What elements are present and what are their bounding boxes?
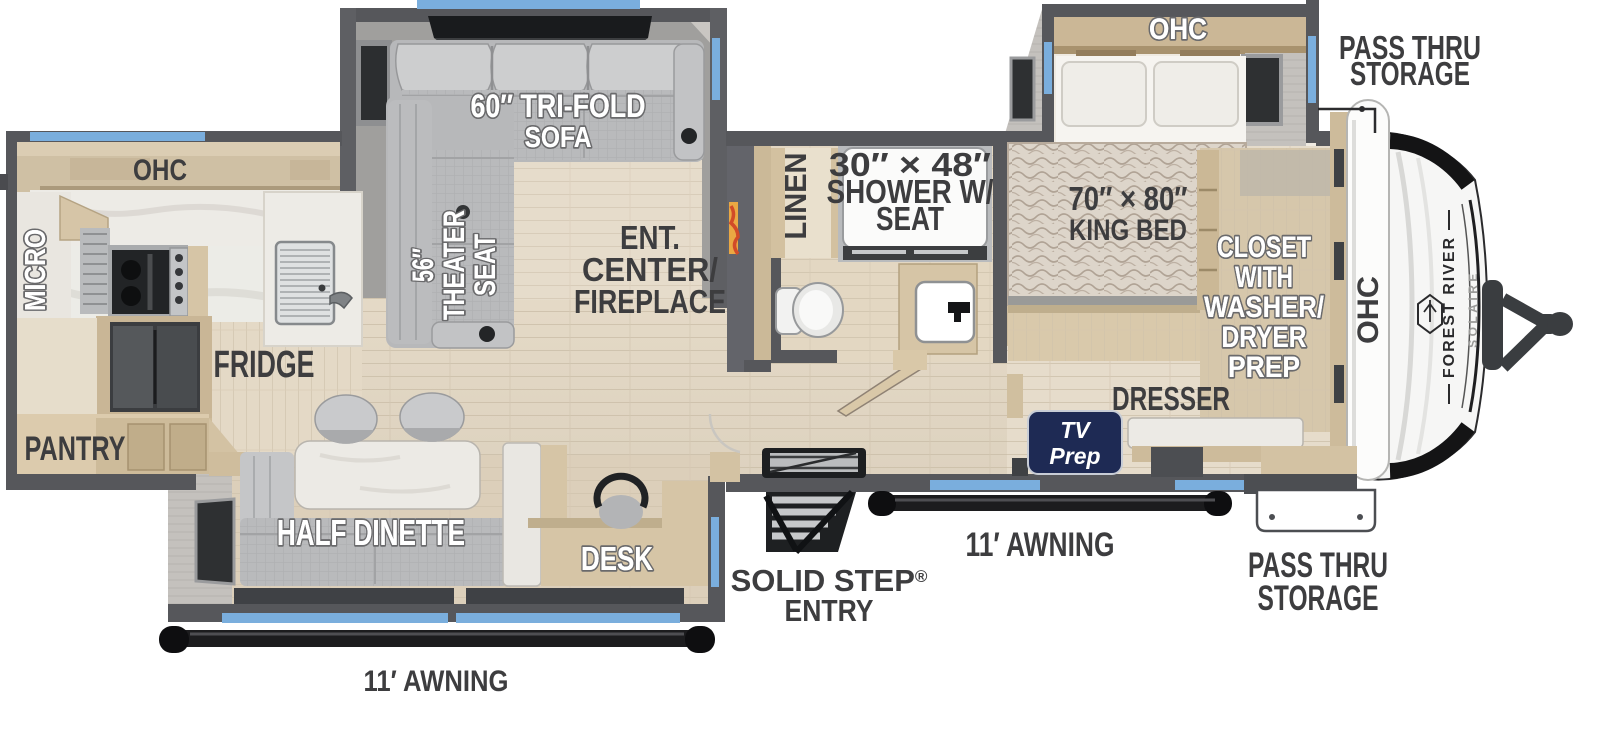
svg-text:FRIDGE: FRIDGE [214,344,315,386]
svg-text:WITH: WITH [1235,261,1293,294]
svg-text:60″ TRI-FOLD: 60″ TRI-FOLD [471,88,646,124]
svg-text:FIREPLACE: FIREPLACE [574,283,726,320]
svg-text:MICRO: MICRO [20,229,52,311]
svg-text:SOFA: SOFA [525,122,592,154]
svg-text:ENTRY: ENTRY [785,593,874,628]
svg-text:SOLAIRE: SOLAIRE [1466,270,1480,348]
svg-text:STORAGE: STORAGE [1350,55,1470,92]
svg-text:FOREST RIVER: FOREST RIVER [1441,236,1458,378]
svg-text:OHC: OHC [1149,13,1207,46]
svg-text:STORAGE: STORAGE [1258,579,1379,618]
svg-text:OHC: OHC [133,154,187,187]
svg-text:OHC: OHC [1352,276,1385,344]
svg-text:DRYER: DRYER [1222,321,1307,354]
svg-text:70″ × 80″: 70″ × 80″ [1069,180,1188,217]
svg-text:TV: TV [1060,417,1091,443]
svg-text:DRESSER: DRESSER [1112,380,1230,417]
svg-text:LINEN: LINEN [778,153,813,240]
svg-text:11′ AWNING: 11′ AWNING [364,665,509,698]
svg-text:56″: 56″ [407,248,440,282]
svg-text:Prep: Prep [1049,443,1100,469]
svg-text:11′ AWNING: 11′ AWNING [966,526,1115,564]
svg-text:KING BED: KING BED [1069,214,1187,247]
svg-text:THEATER: THEATER [438,210,471,320]
svg-text:PANTRY: PANTRY [25,430,126,468]
svg-text:DESK: DESK [581,540,653,577]
svg-text:PREP: PREP [1228,351,1300,384]
svg-text:SEAT: SEAT [876,200,944,237]
svg-text:CLOSET: CLOSET [1217,231,1311,264]
svg-text:HALF DINETTE: HALF DINETTE [277,512,465,553]
svg-text:WASHER/: WASHER/ [1204,291,1325,324]
svg-text:SEAT: SEAT [469,234,502,296]
